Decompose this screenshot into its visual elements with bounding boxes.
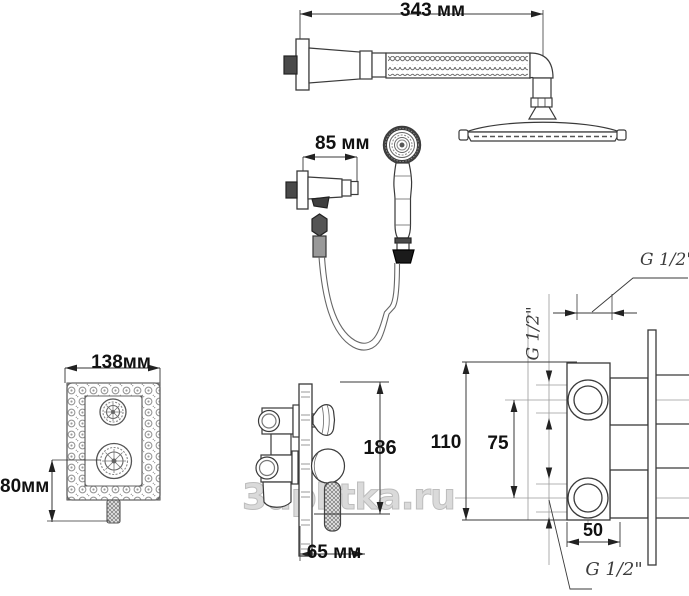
thread-callout-bottom: G 1/2" xyxy=(583,561,645,579)
dim-arm-length: 343 мм xyxy=(400,1,462,20)
trim-plate-figure xyxy=(47,365,160,523)
wall-bracket-figure xyxy=(286,154,358,257)
mixer-side-figure xyxy=(256,382,390,561)
dim-body-height: 110 xyxy=(428,433,464,452)
dim-bracket-depth: 85 мм xyxy=(315,134,369,153)
thread-callout-side: G 1/2" xyxy=(526,309,543,361)
shower-arm-figure xyxy=(284,10,626,141)
dim-body-width: 50 xyxy=(577,521,609,539)
dim-plate-width: 138мм xyxy=(90,353,152,372)
dim-trim-height: 186 xyxy=(360,438,400,458)
dim-trim-depth: 65 мм xyxy=(303,543,365,562)
thread-callout-top: G 1/2" xyxy=(640,252,689,269)
hand-shower-figure xyxy=(319,127,421,351)
diagram-canvas xyxy=(0,0,689,596)
dim-plate-height: 80мм xyxy=(0,477,46,496)
dim-port-spacing: 75 xyxy=(483,434,513,453)
technical-drawing-page: 3dplitka.ru xyxy=(0,0,689,596)
